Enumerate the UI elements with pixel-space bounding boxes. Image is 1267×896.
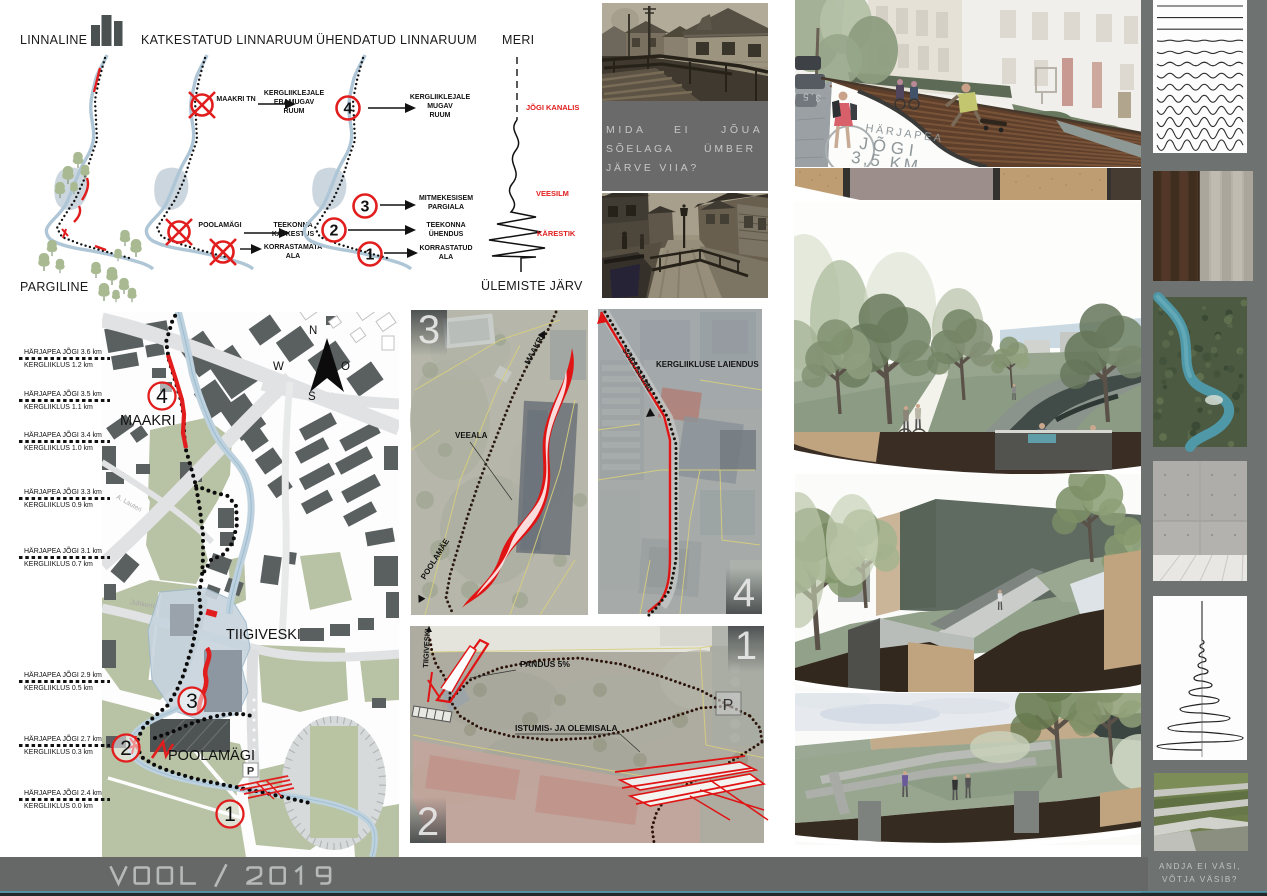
- svg-text:RUUM: RUUM: [430, 112, 451, 119]
- svg-text:HÄRJAPEA JÕGI 2.4 km: HÄRJAPEA JÕGI 2.4 km: [24, 788, 102, 797]
- svg-text:MIDA: MIDA: [606, 124, 647, 136]
- svg-text:ÜHENDUS: ÜHENDUS: [429, 229, 464, 238]
- svg-text:KERGLIIKLUS 1.2 km: KERGLIIKLUS 1.2 km: [24, 362, 93, 369]
- svg-text:HÄRJAPEA JÕGI 3.4 km: HÄRJAPEA JÕGI 3.4 km: [24, 430, 102, 439]
- svg-text:P: P: [247, 766, 254, 778]
- svg-text:KATKESTATUD LINNARUUM: KATKESTATUD LINNARUUM: [141, 33, 313, 47]
- svg-text:TIIGIVESKI: TIIGIVESKI: [226, 627, 301, 643]
- svg-text:RUUM: RUUM: [284, 108, 305, 115]
- svg-text:POOLAMÄGI: POOLAMÄGI: [198, 221, 241, 229]
- svg-text:4: 4: [733, 571, 755, 615]
- svg-text:ALA: ALA: [439, 254, 453, 261]
- svg-text:HÄRJAPEA JÕGI 2.9 km: HÄRJAPEA JÕGI 2.9 km: [24, 670, 102, 679]
- svg-text:MAAKRI: MAAKRI: [120, 413, 176, 429]
- svg-text:SÕELAGA: SÕELAGA: [606, 142, 674, 155]
- svg-text:3: 3: [186, 690, 198, 713]
- svg-text:4: 4: [156, 385, 168, 408]
- svg-text:3: 3: [361, 199, 370, 216]
- svg-text:EI: EI: [674, 124, 691, 136]
- svg-text:TEEKONNA: TEEKONNA: [426, 222, 465, 229]
- svg-text:S: S: [308, 391, 316, 403]
- svg-text:ÜLEMISTE JÄRV: ÜLEMISTE JÄRV: [481, 279, 583, 293]
- svg-text:HÄRJAPEA JÕGI 2.7 km: HÄRJAPEA JÕGI 2.7 km: [24, 734, 102, 743]
- svg-text:KERGLIIKLUS 0.7 km: KERGLIIKLUS 0.7 km: [24, 561, 93, 568]
- svg-text:HÄRJAPEA JÕGI 3.1 km: HÄRJAPEA JÕGI 3.1 km: [24, 546, 102, 555]
- svg-text:MAAKRI TN: MAAKRI TN: [216, 96, 255, 103]
- svg-text:2: 2: [330, 223, 339, 240]
- svg-text:KERGLIIKLUS 1.0 km: KERGLIIKLUS 1.0 km: [24, 445, 93, 452]
- svg-text:ÜHENDATUD LINNARUUM: ÜHENDATUD LINNARUUM: [316, 33, 477, 47]
- svg-text:KERGLIIKLEJALE: KERGLIIKLEJALE: [410, 94, 471, 101]
- svg-text:JÕGI KANALIS: JÕGI KANALIS: [526, 103, 579, 112]
- svg-text:KERGLIIKLUS 0.3 km: KERGLIIKLUS 0.3 km: [24, 749, 93, 756]
- svg-text:W: W: [273, 361, 284, 373]
- svg-text:MITMEKESISEM: MITMEKESISEM: [419, 195, 473, 202]
- svg-text:KERGLIIKLUSE LAIENDUS: KERGLIIKLUSE LAIENDUS: [656, 360, 759, 369]
- svg-text:HÄRJAPEA JÕGI 3.5 km: HÄRJAPEA JÕGI 3.5 km: [24, 389, 102, 398]
- svg-text:4: 4: [344, 101, 353, 118]
- svg-text:1: 1: [224, 803, 236, 826]
- svg-text:PARGIALA: PARGIALA: [428, 204, 464, 211]
- svg-text:2: 2: [120, 737, 132, 760]
- svg-text:VÕTJA VÄSIB?: VÕTJA VÄSIB?: [1162, 874, 1238, 884]
- svg-text:KERGLIIKLUS 0.0 km: KERGLIIKLUS 0.0 km: [24, 803, 93, 810]
- svg-text:MUGAV: MUGAV: [427, 103, 453, 110]
- svg-text:N: N: [309, 325, 317, 337]
- svg-text:O: O: [341, 361, 350, 373]
- svg-text:JÄRVE VIIA?: JÄRVE VIIA?: [606, 162, 699, 174]
- svg-text:3: 3: [418, 308, 440, 352]
- svg-text:VEEALA: VEEALA: [455, 431, 488, 440]
- svg-text:KERGLIIKLUS 1.1 km: KERGLIIKLUS 1.1 km: [24, 404, 93, 411]
- svg-text:VEESILM: VEESILM: [536, 189, 569, 198]
- svg-text:1: 1: [366, 247, 375, 264]
- svg-text:P: P: [723, 697, 734, 714]
- svg-text:JÕUA: JÕUA: [721, 123, 763, 136]
- svg-text:ISTUMIS- JA OLEMISALA: ISTUMIS- JA OLEMISALA: [515, 723, 618, 733]
- svg-text:1: 1: [735, 624, 757, 668]
- svg-text:ANDJA EI VÄSI,: ANDJA EI VÄSI,: [1159, 861, 1241, 871]
- svg-text:ÜMBER: ÜMBER: [704, 143, 756, 155]
- svg-text:HÄRJAPEA JÕGI 3.3 km: HÄRJAPEA JÕGI 3.3 km: [24, 487, 102, 496]
- svg-text:KORRASTATUD: KORRASTATUD: [419, 245, 472, 252]
- svg-text:PARGILINE: PARGILINE: [20, 280, 88, 294]
- svg-text:KERGLIIKLUS 0.9 km: KERGLIIKLUS 0.9 km: [24, 502, 93, 509]
- svg-text:POOLAMÄGI: POOLAMÄGI: [168, 747, 255, 764]
- svg-text:2: 2: [417, 800, 439, 844]
- svg-text:KERGLIIKLUS 0.5 km: KERGLIIKLUS 0.5 km: [24, 685, 93, 692]
- svg-text:KÄRESTIK: KÄRESTIK: [537, 229, 576, 238]
- svg-text:KORRASTAMATA: KORRASTAMATA: [264, 244, 322, 251]
- svg-text:ALA: ALA: [286, 253, 300, 260]
- svg-text:LINNALINE: LINNALINE: [20, 33, 87, 47]
- svg-text:HÄRJAPEA JÕGI 3.6 km: HÄRJAPEA JÕGI 3.6 km: [24, 347, 102, 356]
- svg-text:PANDUS 5%: PANDUS 5%: [520, 659, 570, 669]
- svg-text:MERI: MERI: [502, 33, 534, 47]
- svg-text:EBAMUGAV: EBAMUGAV: [274, 99, 315, 106]
- svg-text:KERGLIIKLEJALE: KERGLIIKLEJALE: [264, 90, 325, 97]
